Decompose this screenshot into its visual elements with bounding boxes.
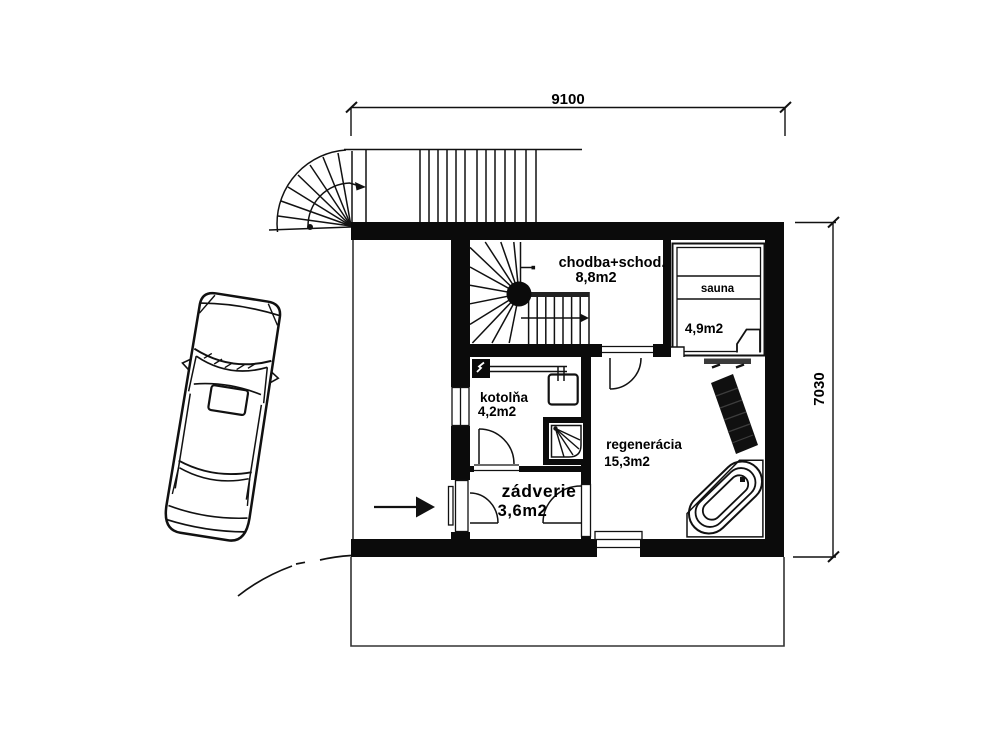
svg-text:9100: 9100 (551, 91, 584, 108)
svg-text:4,9m2: 4,9m2 (685, 321, 723, 336)
svg-text:sauna: sauna (701, 283, 735, 295)
svg-text:kotolňa: kotolňa (480, 390, 528, 405)
svg-text:3,6m2: 3,6m2 (498, 502, 548, 520)
svg-text:zádverie: zádverie (502, 481, 577, 501)
svg-text:regenerácia: regenerácia (606, 437, 682, 452)
svg-text:15,3m2: 15,3m2 (604, 454, 650, 469)
svg-text:chodba+schod.: chodba+schod. (559, 255, 666, 271)
svg-text:7030: 7030 (811, 372, 828, 405)
svg-text:4,2m2: 4,2m2 (478, 404, 516, 419)
svg-text:8,8m2: 8,8m2 (575, 270, 616, 286)
